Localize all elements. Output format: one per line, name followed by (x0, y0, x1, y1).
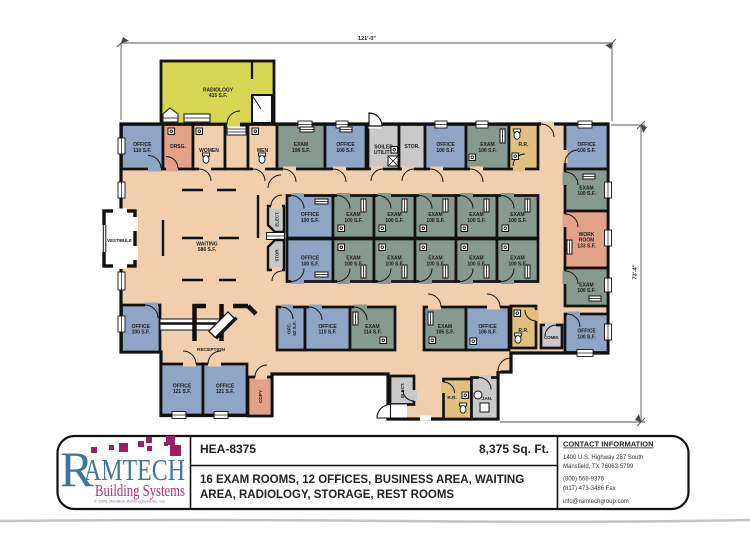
svg-text:1400 U.S. Highway 287 South: 1400 U.S. Highway 287 South (563, 455, 643, 461)
svg-text:OFFICE100 S.F.: OFFICE100 S.F. (301, 256, 320, 268)
svg-text:Mansfield, TX 76063-5799: Mansfield, TX 76063-5799 (563, 464, 634, 470)
svg-text:OFFICE106 S.F.: OFFICE106 S.F. (478, 324, 497, 336)
svg-text:OFFICE100 S.F.: OFFICE100 S.F. (577, 329, 596, 341)
svg-text:EXAM100 S.F.: EXAM100 S.F. (478, 142, 497, 154)
svg-text:CONTACT INFORMATION: CONTACT INFORMATION (563, 440, 654, 449)
svg-text:EXAM100 S.F.: EXAM100 S.F. (385, 212, 404, 224)
svg-text:HEA-8375: HEA-8375 (200, 442, 256, 456)
svg-text:EXAM100 S.F.: EXAM100 S.F. (508, 212, 527, 224)
svg-text:EXAM100 S.F.: EXAM100 S.F. (344, 256, 363, 268)
svg-text:JAN.: JAN. (482, 396, 492, 401)
svg-text:OFFICE100 S.F.: OFFICE100 S.F. (436, 142, 455, 154)
svg-text:(817) 473-3486 Fax: (817) 473-3486 Fax (563, 486, 616, 492)
svg-text:RECEPTION: RECEPTION (197, 347, 226, 353)
svg-text:AREA, RADIOLOGY, STORAGE, REST: AREA, RADIOLOGY, STORAGE, REST ROOMS (200, 489, 454, 501)
svg-text:WAITING586 S.F.: WAITING586 S.F. (196, 241, 217, 253)
svg-text:DRSG.: DRSG. (170, 144, 186, 150)
svg-text:COMM.: COMM. (544, 335, 559, 340)
svg-text:EXAM100 S.F.: EXAM100 S.F. (426, 212, 445, 224)
svg-text:Building Systems: Building Systems (95, 481, 185, 500)
svg-text:73'-4": 73'-4" (633, 264, 639, 279)
svg-text:OFFICE100 S.F.: OFFICE100 S.F. (132, 324, 151, 336)
svg-text:OFFICE110 S.F.: OFFICE110 S.F. (133, 142, 152, 154)
svg-text:WORKROOM133 S.F.: WORKROOM133 S.F. (577, 232, 596, 250)
svg-text:EXAM108 S.F.: EXAM108 S.F. (292, 142, 311, 154)
svg-text:OFFICE100 S.F.: OFFICE100 S.F. (577, 142, 596, 154)
svg-text:EXAM114 S.F.: EXAM114 S.F. (363, 324, 382, 336)
svg-text:STOR.: STOR. (275, 248, 280, 261)
svg-text:OFFICE121 S.F.: OFFICE121 S.F. (173, 383, 192, 395)
svg-text:EXAM100 S.F.: EXAM100 S.F. (577, 282, 596, 294)
svg-text:R.R.: R.R. (447, 395, 456, 400)
svg-text:OFC.62 S.F.: OFC.62 S.F. (286, 321, 297, 335)
svg-text:OFFICE100 S.F.: OFFICE100 S.F. (336, 142, 355, 154)
svg-text:121'-0": 121'-0" (358, 36, 376, 42)
svg-text:COPY: COPY (258, 390, 263, 403)
svg-text:(800) 568-9376: (800) 568-9376 (563, 477, 605, 483)
svg-text:OFFICE110 S.F.: OFFICE110 S.F. (318, 324, 337, 336)
svg-text:© 2003, Ramtech Building Syste: © 2003, Ramtech Building Systems, Inc. (94, 499, 166, 504)
svg-text:EXAM100 S.F.: EXAM100 S.F. (467, 212, 486, 224)
svg-text:OFFICE100 S.F.: OFFICE100 S.F. (301, 212, 320, 224)
svg-text:STOR.: STOR. (404, 144, 420, 150)
svg-text:OFFICE121 S.F.: OFFICE121 S.F. (216, 383, 235, 395)
svg-text:VESTIBULE: VESTIBULE (107, 238, 132, 243)
svg-text:8,375 Sq. Ft.: 8,375 Sq. Ft. (479, 442, 549, 456)
svg-text:EXAM100 S.F.: EXAM100 S.F. (385, 256, 404, 268)
svg-text:R.R.: R.R. (519, 142, 530, 148)
svg-text:info@ramtechgroup.com: info@ramtechgroup.com (563, 499, 629, 505)
svg-text:EXAM105 S.F.: EXAM105 S.F. (436, 324, 455, 336)
svg-text:EXAM100 S.F.: EXAM100 S.F. (577, 185, 596, 197)
svg-text:16 EXAM ROOMS, 12 OFFICES, BUS: 16 EXAM ROOMS, 12 OFFICES, BUSINESS AREA… (200, 474, 524, 486)
svg-text:EXAM100 S.F.: EXAM100 S.F. (426, 256, 445, 268)
svg-text:EXAM100 S.F.: EXAM100 S.F. (344, 212, 363, 224)
svg-text:EXAM100 S.F.: EXAM100 S.F. (508, 256, 527, 268)
svg-text:EXAM100 S.F.: EXAM100 S.F. (467, 256, 486, 268)
svg-text:ELECT.: ELECT. (275, 211, 280, 226)
